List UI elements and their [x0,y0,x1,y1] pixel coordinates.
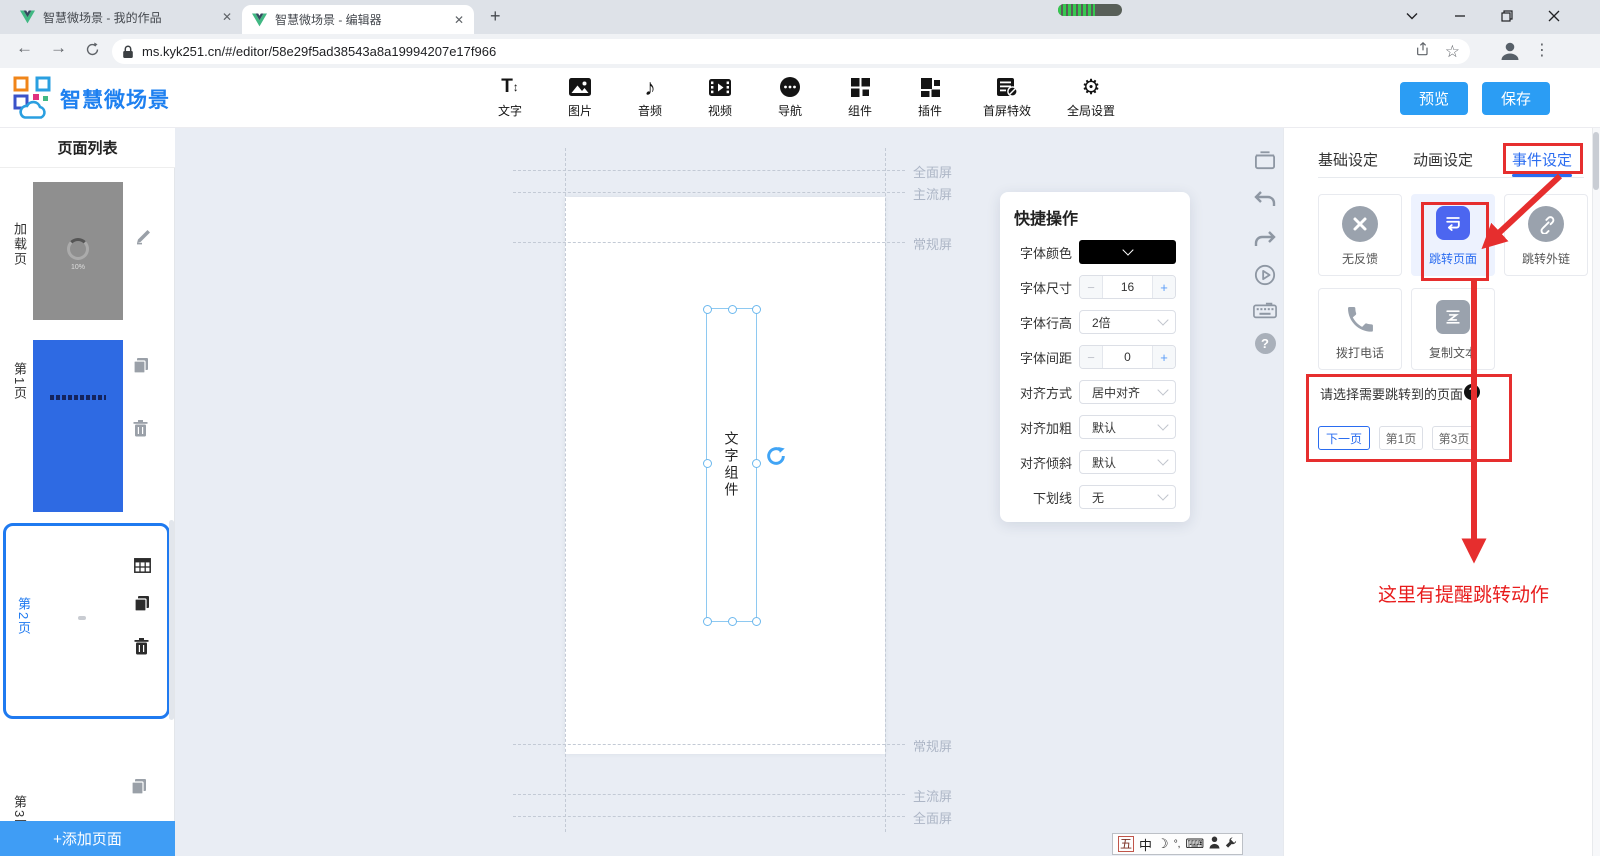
tab-title: 智慧微场景 - 我的作品 [43,9,214,26]
ime-punct-icon[interactable]: °, [1174,839,1181,850]
play-preview-icon[interactable] [1252,262,1278,288]
align-select[interactable]: 居中对齐 [1079,380,1176,404]
quick-ops-panel: 快捷操作 字体颜色 字体尺寸 − 16 + 字体行高 2倍 字体间距 − 0 + [1000,192,1190,522]
forward-icon[interactable]: → [50,38,67,58]
row-underline: 下划线 无 [1014,484,1176,510]
window-minimize-button[interactable] [1443,0,1477,32]
nav-dots-icon [779,75,801,99]
tool-image[interactable]: 图片 [558,75,602,119]
undo-icon[interactable] [1252,186,1278,212]
jump-help-icon[interactable]: ? [1464,384,1480,400]
tab-close-icon[interactable]: ✕ [454,13,464,27]
lock-icon [122,45,134,59]
guide-label: 常规屏 [913,736,952,755]
decrement-button[interactable]: − [1080,276,1103,298]
ime-chinese-icon[interactable]: 中 [1139,835,1152,854]
loading-spinner [67,238,89,260]
guide-line-vertical-right [885,148,886,832]
tab-basic-settings[interactable]: 基础设定 [1318,149,1378,170]
copy-page-icon[interactable] [134,595,150,617]
external-link-icon [1528,206,1564,242]
keyboard-shortcuts-icon[interactable] [1252,297,1278,323]
font-color-dropdown[interactable] [1079,240,1176,264]
thumb-mark [78,616,86,620]
gear-icon: ⚙ [1082,75,1101,99]
event-card-jump-page[interactable]: 跳转页面 [1411,194,1495,276]
bookmark-star-icon[interactable]: ☆ [1445,42,1460,62]
guide-line-normalscreen-bottom [513,744,905,745]
browser-tab-my-works[interactable]: 智慧微场景 - 我的作品 ✕ [10,0,242,34]
page-list-title: 页面列表 [0,128,175,168]
font-size-value[interactable]: 16 [1103,276,1152,298]
profile-avatar[interactable] [1498,39,1522,68]
new-tab-button[interactable]: + [490,6,501,27]
tool-nav[interactable]: 导航 [768,75,812,119]
guide-line-fullscreen-bottom [513,816,905,817]
browser-menu-kebab-icon[interactable]: ⋮ [1534,40,1550,60]
guide-line-mainscreen-bottom [513,794,905,795]
blocks-icon [850,75,871,99]
copy-page-icon[interactable] [131,778,147,800]
row-align: 对齐方式 居中对齐 [1014,379,1176,405]
page-thumb-loading[interactable]: 10% [33,182,123,320]
edit-page-icon[interactable] [135,228,152,250]
jump-option-page-3[interactable]: 第3页 [1432,426,1476,450]
row-bold: 对齐加粗 默认 [1014,414,1176,440]
ime-person-icon[interactable] [1209,836,1220,852]
increment-button[interactable]: + [1152,346,1175,368]
plugin-icon [920,75,941,99]
tab-title: 智慧微场景 - 编辑器 [275,11,446,28]
loading-percent: 10% [67,264,89,271]
quick-ops-title: 快捷操作 [1014,205,1176,229]
ime-moon-icon[interactable]: ☽ [1157,836,1169,852]
vue-favicon [252,13,267,27]
preview-button[interactable]: 预览 [1400,82,1468,115]
template-grid-icon[interactable] [134,558,151,578]
screen-effect-icon [996,75,1018,99]
italic-select[interactable]: 默认 [1079,450,1176,474]
film-icon [708,75,732,99]
active-tab-underline [1512,174,1572,177]
row-letter-spacing: 字体间距 − 0 + [1014,344,1176,370]
copy-page-icon[interactable] [133,357,149,379]
event-card-copy-text[interactable]: 复制文本 [1411,288,1495,370]
resize-handle-nw[interactable] [703,305,712,314]
row-font-size: 字体尺寸 − 16 + [1014,274,1176,300]
increment-button[interactable]: + [1152,276,1175,298]
jump-prompt: 请选择需要跳转到的页面 [1320,384,1463,403]
ime-wubi-icon[interactable]: 五 [1118,836,1134,852]
tool-audio[interactable]: ♪ 音频 [628,75,672,119]
guide-line-vertical-left [565,148,566,832]
underline-select[interactable]: 无 [1079,485,1176,509]
page-label-1[interactable]: 第1页 [10,362,29,401]
text-icon: T↕ [501,75,519,99]
editor-toolbar: T↕ 文字 图片 ♪ 音频 视频 导航 组件 插件 首屏特效 [488,75,1120,119]
url-text[interactable]: ms.kyk251.cn/#/editor/58e29f5ad38543a8a1… [142,44,1407,59]
row-font-color: 字体颜色 [1014,239,1176,265]
tool-plugin[interactable]: 插件 [908,75,952,119]
tabs-divider [1318,177,1584,178]
tab-event-settings[interactable]: 事件设定 [1512,149,1572,170]
guide-label: 常规屏 [913,234,952,253]
ime-wrench-icon[interactable] [1225,836,1237,852]
reload-icon[interactable] [84,41,101,63]
app-root: 智慧微场景 - 我的作品 ✕ 智慧微场景 - 编辑器 ✕ + ← → ms.ky… [0,0,1600,856]
save-button[interactable]: 保存 [1482,82,1550,115]
guide-line-normalscreen-top [513,242,905,243]
text-component[interactable]: 文字组件 [706,308,757,622]
letter-spacing-value[interactable]: 0 [1103,346,1152,368]
event-card-no-feedback[interactable]: 无反馈 [1318,194,1402,276]
tab-close-icon[interactable]: ✕ [222,10,232,24]
add-page-button[interactable]: +添加页面 [0,821,175,856]
brand-title: 智慧微场景 [60,84,170,114]
jump-page-icon [1436,206,1470,240]
thumb-text-placeholder [50,395,106,400]
resize-handle-n[interactable] [728,305,737,314]
row-line-height: 字体行高 2倍 [1014,309,1176,335]
delete-page-icon[interactable] [134,638,149,660]
vue-favicon [20,10,35,24]
rotate-handle-icon[interactable] [765,445,787,472]
event-card-jump-link[interactable]: 跳转外链 [1504,194,1588,276]
delete-page-icon[interactable] [133,420,148,442]
url-omnibox[interactable]: ms.kyk251.cn/#/editor/58e29f5ad38543a8a1… [112,39,1470,64]
resize-handle-ne[interactable] [752,305,761,314]
guide-line-mainscreen-top [513,192,905,193]
tool-video[interactable]: 视频 [698,75,742,119]
phone-icon [1344,303,1376,340]
guide-line-fullscreen-top [513,170,905,171]
bold-select[interactable]: 默认 [1079,415,1176,439]
guide-label: 主流屏 [913,184,952,203]
music-note-icon: ♪ [644,75,656,99]
app-logo [13,76,55,125]
layers-drawer-icon[interactable] [1252,147,1278,173]
resize-handle-s[interactable] [728,617,737,626]
window-restore-button[interactable] [1490,0,1524,32]
row-italic: 对齐倾斜 默认 [1014,449,1176,475]
line-height-select[interactable]: 2倍 [1079,310,1176,334]
guide-label: 全面屏 [913,162,952,181]
guide-label: 全面屏 [913,808,952,827]
redo-icon[interactable] [1252,226,1278,252]
no-feedback-icon [1342,206,1378,242]
page-scrollbar-thumb[interactable] [1593,132,1599,190]
event-card-phone-call[interactable]: 拨打电话 [1318,288,1402,370]
image-icon [568,75,592,99]
tool-global-settings[interactable]: ⚙ 全局设置 [1062,75,1120,119]
page-scrollbar[interactable] [1592,128,1600,856]
decrement-button[interactable]: − [1080,346,1103,368]
jump-option-page-1[interactable]: 第1页 [1379,426,1423,450]
font-size-stepper: − 16 + [1079,275,1176,299]
text-component-label: 文字组件 [722,431,742,499]
jump-option-next-page[interactable]: 下一页 [1318,426,1370,450]
ime-toolbar: 五 中 ☽ °, ⌨ [1112,833,1243,855]
resize-handle-se[interactable] [752,617,761,626]
browser-tab-editor[interactable]: 智慧微场景 - 编辑器 ✕ [242,5,474,34]
window-chevron-button[interactable] [1395,0,1429,32]
resize-handle-sw[interactable] [703,617,712,626]
tool-text[interactable]: T↕ 文字 [488,75,532,119]
guide-label: 主流屏 [913,786,952,805]
ime-keyboard-icon[interactable]: ⌨ [1185,836,1204,852]
resize-handle-w[interactable] [703,459,712,468]
page-thumb-1[interactable] [33,340,123,512]
tab-animation-settings[interactable]: 动画设定 [1413,149,1473,170]
back-icon[interactable]: ← [16,38,33,58]
page-label-2[interactable]: 第2页 [14,597,33,636]
resize-handle-e[interactable] [752,459,761,468]
help-icon[interactable]: ? [1252,330,1278,356]
annotation-note: 这里有提醒跳转动作 [1378,580,1549,607]
page-label-loading[interactable]: 加载页 [10,222,29,267]
tool-screen-effect[interactable]: 首屏特效 [978,75,1036,119]
sidebar-scrollbar[interactable] [169,520,174,720]
tool-component[interactable]: 组件 [838,75,882,119]
copy-text-icon [1436,300,1470,334]
share-icon[interactable] [1415,41,1431,62]
letter-spacing-stepper: − 0 + [1079,345,1176,369]
recording-indicator [1058,4,1122,16]
window-close-button[interactable] [1537,0,1571,32]
